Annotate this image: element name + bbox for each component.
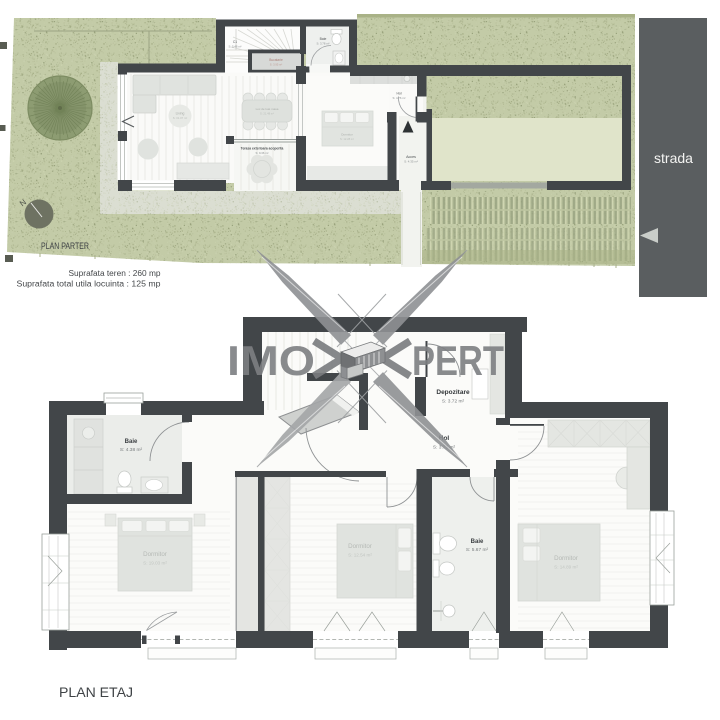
svg-text:Living: Living xyxy=(176,112,185,116)
svg-text:S: 12.28 m²: S: 12.28 m² xyxy=(340,137,354,141)
svg-text:Baie: Baie xyxy=(320,37,327,41)
svg-text:S: 4.76 m²: S: 4.76 m² xyxy=(393,96,406,100)
svg-text:Dormitor: Dormitor xyxy=(341,133,353,137)
svg-text:Depozitare: Depozitare xyxy=(436,389,470,396)
svg-text:S: 21.48 m²: S: 21.48 m² xyxy=(260,112,274,116)
svg-text:Baie: Baie xyxy=(471,539,484,545)
svg-text:C1: C1 xyxy=(233,40,237,44)
svg-text:Baie: Baie xyxy=(125,439,138,445)
svg-text:PERT: PERT xyxy=(412,337,504,384)
svg-text:S: 12.54 m²: S: 12.54 m² xyxy=(348,553,372,558)
svg-text:Loc de luat masa: Loc de luat masa xyxy=(256,107,279,111)
svg-text:S: 4.35 m²: S: 4.35 m² xyxy=(404,160,418,164)
svg-text:S: 9.36 m²: S: 9.36 m² xyxy=(256,151,269,155)
svg-text:S: 14.89 m²: S: 14.89 m² xyxy=(554,565,578,570)
svg-text:strada: strada xyxy=(654,150,693,166)
svg-text:PLAN PARTER: PLAN PARTER xyxy=(41,241,89,252)
svg-text:Bucatarie: Bucatarie xyxy=(269,58,283,62)
svg-text:S: 31.07 m²: S: 31.07 m² xyxy=(173,116,188,120)
svg-text:S: 4.38 m²: S: 4.38 m² xyxy=(120,447,143,453)
svg-text:Suprafata total utila locuinta: Suprafata total utila locuinta : 125 mp xyxy=(17,280,162,289)
svg-text:Terasa exterioara acoperita: Terasa exterioara acoperita xyxy=(241,147,284,151)
svg-text:Suprafata teren : 260 mp: Suprafata teren : 260 mp xyxy=(69,269,162,278)
svg-text:Dormitor: Dormitor xyxy=(348,543,372,550)
svg-text:S: 3.95 m²: S: 3.95 m² xyxy=(270,63,283,67)
svg-text:S: 3.78 m²: S: 3.78 m² xyxy=(317,42,330,46)
svg-text:S: 19.03 m²: S: 19.03 m² xyxy=(143,561,167,566)
svg-text:PLAN ETAJ: PLAN ETAJ xyxy=(59,685,133,700)
svg-text:S: 5.48 m²: S: 5.48 m² xyxy=(229,45,242,49)
svg-text:Acces: Acces xyxy=(406,155,416,159)
svg-text:IMO: IMO xyxy=(227,337,315,384)
svg-text:S: 5.67 m²: S: 5.67 m² xyxy=(466,547,489,553)
svg-text:S: 3.72 m²: S: 3.72 m² xyxy=(442,399,465,405)
svg-text:Dormitor: Dormitor xyxy=(554,555,578,562)
svg-text:Dormitor: Dormitor xyxy=(143,551,167,558)
